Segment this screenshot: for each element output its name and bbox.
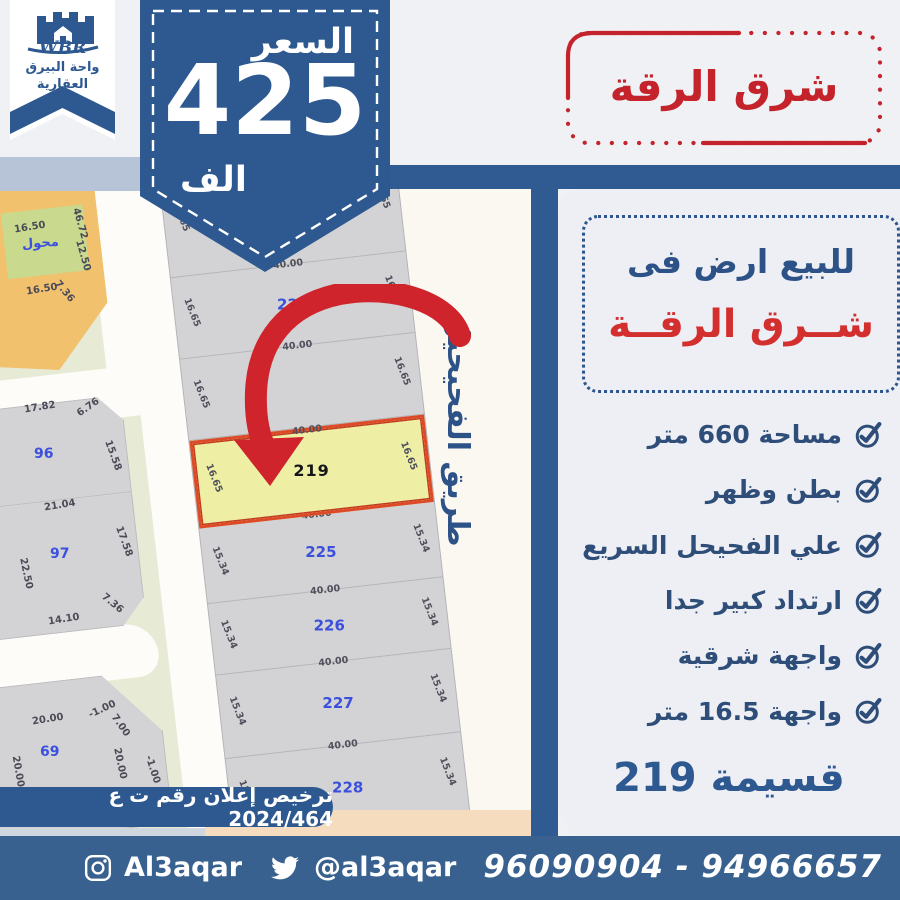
feature-text: علي الفحيحل السريع bbox=[582, 531, 842, 560]
map-dim-label: 69 bbox=[40, 744, 59, 760]
map-dim-label: 7.36 bbox=[99, 591, 125, 615]
check-circle-icon bbox=[854, 641, 884, 671]
feature-text: واجهة 16.5 متر bbox=[648, 697, 842, 726]
instagram-icon bbox=[84, 854, 112, 882]
map-dim-label: 15.58 bbox=[102, 439, 123, 472]
brand-name-line2: العقارية bbox=[10, 77, 115, 92]
map-dim-label: 16.50 bbox=[13, 220, 46, 236]
map-dim-label: -1.00 bbox=[143, 754, 162, 785]
feature-item: علي الفحيحل السريع bbox=[558, 518, 900, 573]
arrow-annotation bbox=[212, 284, 472, 499]
footer-bar: Al3aqar @al3aqar 96090904 - 94966657 bbox=[0, 836, 900, 900]
feature-item: واجهة 16.5 متر bbox=[558, 683, 900, 738]
map-dim-label: 6.76 bbox=[75, 396, 102, 419]
map-dim-label: 97 bbox=[50, 546, 69, 562]
panel-border-left bbox=[531, 165, 558, 840]
phone-numbers: 96090904 - 94966657 bbox=[483, 849, 882, 885]
twitter-handle: @al3aqar bbox=[314, 852, 456, 883]
map-dim-label: محول bbox=[22, 235, 60, 253]
check-circle-icon bbox=[854, 586, 884, 616]
check-circle-icon bbox=[854, 530, 884, 560]
map-dim-label: 20.00 bbox=[31, 712, 64, 728]
feature-text: ارتداد كبير جدا bbox=[665, 586, 842, 615]
instagram-group: Al3aqar bbox=[84, 852, 242, 883]
location-stamp: شرق الرقة bbox=[563, 28, 885, 148]
price-banner: السعر 425 الف bbox=[140, 0, 390, 274]
listing-title-line1: للبيع ارض فى bbox=[585, 242, 897, 281]
location-stamp-text: شرق الرقة bbox=[563, 62, 885, 111]
map-dim-label: 21.04 bbox=[43, 498, 76, 514]
feature-item: واجهة شرقية bbox=[558, 628, 900, 683]
feature-text: مساحة 660 متر bbox=[648, 420, 842, 449]
feature-text: واجهة شرقية bbox=[678, 641, 842, 670]
instagram-handle: Al3aqar bbox=[124, 852, 242, 883]
brand-name-line1: واحة البيرق bbox=[10, 60, 115, 75]
map-dim-label: 46.72 bbox=[70, 207, 89, 240]
listing-title-line2: شــرق الرقــة bbox=[585, 302, 897, 347]
check-circle-icon bbox=[854, 475, 884, 505]
check-circle-icon bbox=[854, 696, 884, 726]
feature-list: مساحة 660 متر بطن وظهر علي الفحيحل bbox=[558, 407, 900, 739]
check-circle-icon bbox=[854, 420, 884, 450]
map-dim-label: 14.10 bbox=[47, 612, 80, 628]
map-dim-label: 17.82 bbox=[23, 400, 56, 416]
twitter-group: @al3aqar bbox=[268, 852, 456, 883]
panel-border-top bbox=[390, 165, 900, 189]
map-dim-label: 7.00 bbox=[109, 712, 132, 739]
feature-item: مساحة 660 متر bbox=[558, 407, 900, 462]
license-text: ترخيص إعلان رقم ت ع 2024/464 bbox=[0, 783, 333, 831]
map-dim-label: 12.50 bbox=[73, 239, 92, 272]
listing-panel: للبيع ارض فى شــرق الرقــة مساحة 660 متر bbox=[558, 189, 900, 838]
map-dim-label: 96 bbox=[34, 446, 53, 462]
decor-band bbox=[0, 157, 140, 191]
listing-title-box: للبيع ارض فى شــرق الرقــة bbox=[582, 215, 900, 393]
feature-text: بطن وظهر bbox=[706, 475, 842, 504]
brand-wbr: WBR bbox=[10, 38, 115, 58]
map-dim-label: 22.50 bbox=[17, 557, 34, 590]
brand-badge: WBR واحة البيرق العقارية bbox=[10, 0, 115, 142]
license-bar: ترخيص إعلان رقم ت ع 2024/464 bbox=[0, 787, 333, 827]
price-amount: 425 bbox=[140, 52, 390, 149]
feature-item: بطن وظهر bbox=[558, 462, 900, 517]
map-dim-label: 17.58 bbox=[113, 525, 134, 558]
price-unit: الف bbox=[180, 160, 247, 200]
feature-item: ارتداد كبير جدا bbox=[558, 573, 900, 628]
plot-map: 16.65 16.65 40.00 16.65 16.65 221 40.00 … bbox=[0, 188, 533, 840]
plot-caption: قسيمة 219 bbox=[558, 755, 900, 801]
map-dim-label: 20.00 bbox=[111, 747, 128, 780]
twitter-icon bbox=[268, 854, 302, 882]
